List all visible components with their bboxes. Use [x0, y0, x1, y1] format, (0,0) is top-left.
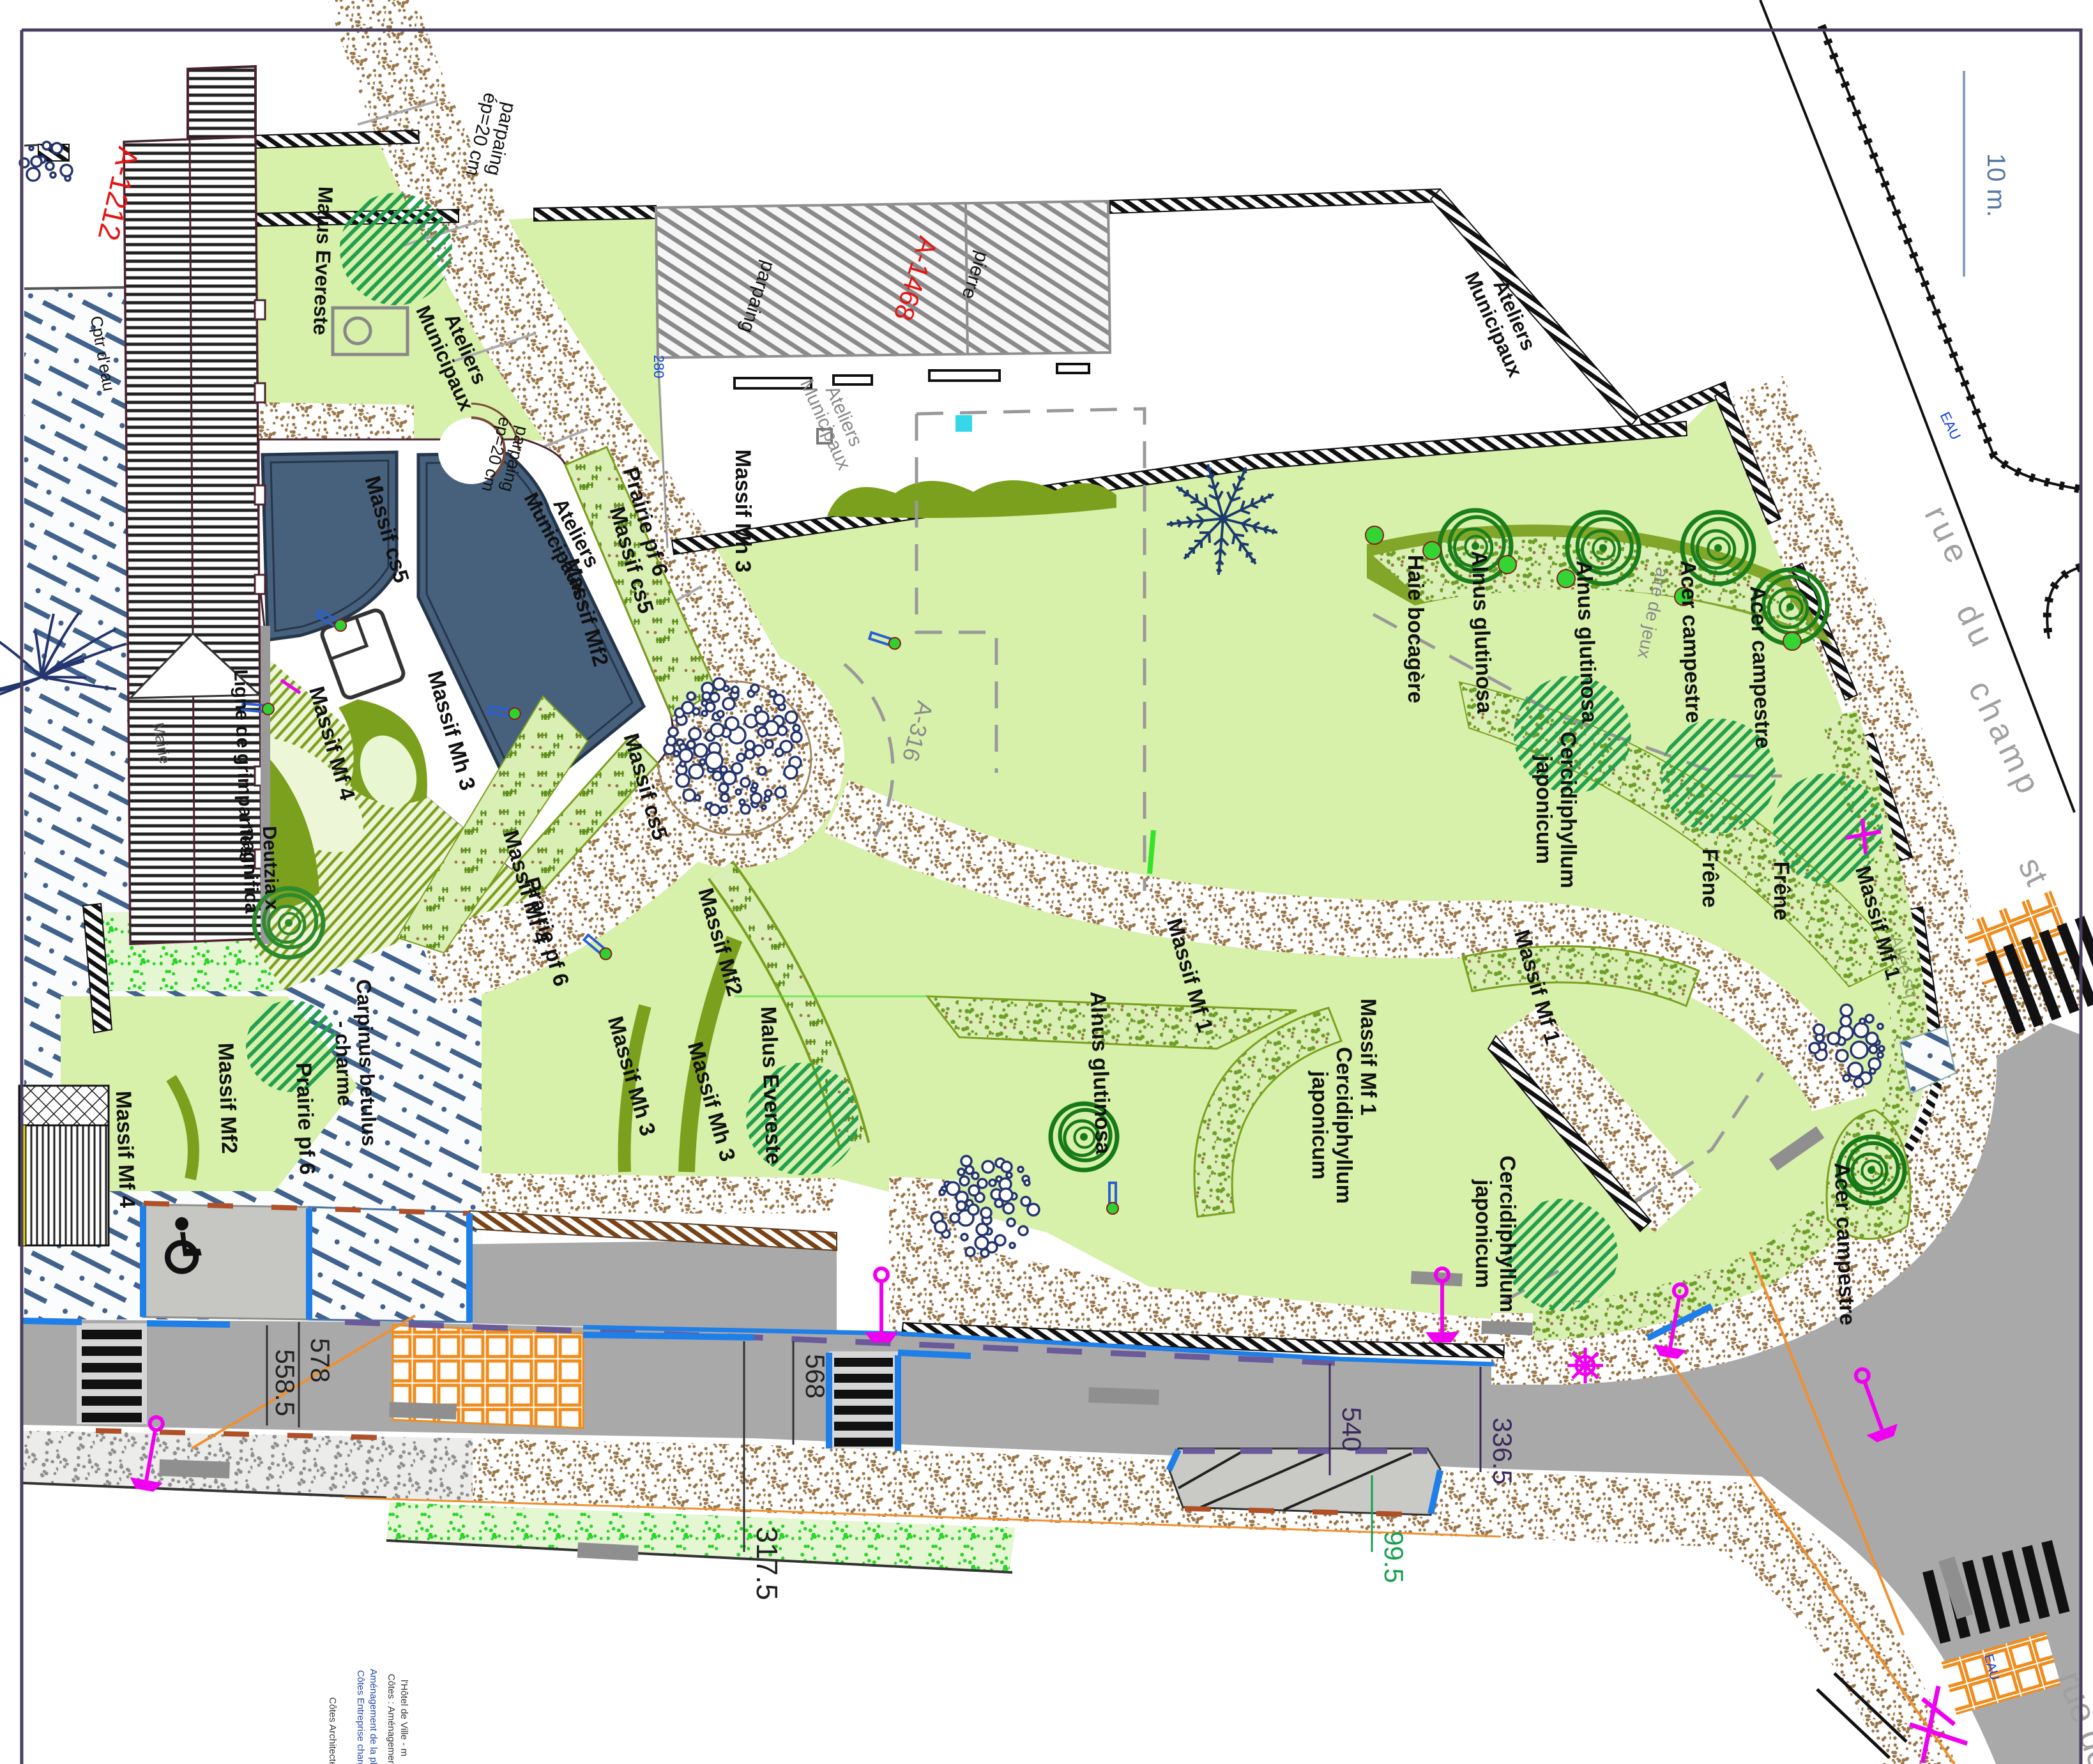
svg-text:Cercidiphyllum: Cercidiphyllum	[1556, 731, 1580, 888]
svg-text:Cercidiphyllum: Cercidiphyllum	[1495, 1155, 1519, 1312]
svg-text:Frêne: Frêne	[1698, 849, 1722, 908]
svg-text:Frêne: Frêne	[1769, 862, 1793, 921]
svg-text:japonicum: japonicum	[1532, 755, 1556, 864]
svg-text:Côtes Architecte: Côtes Architecte	[327, 1697, 338, 1764]
svg-text:Côtes : Aménagement: Côtes : Aménagement	[386, 1674, 397, 1764]
svg-text:Haie bocagère: Haie bocagère	[1403, 555, 1427, 703]
svg-text:- charme: - charme	[331, 1021, 357, 1107]
svg-text:336.5: 336.5	[1488, 1417, 1518, 1484]
svg-text:99.5: 99.5	[1379, 1531, 1409, 1583]
svg-text:568: 568	[800, 1354, 830, 1399]
svg-text:Cercidiphyllum: Cercidiphyllum	[1332, 1047, 1356, 1204]
svg-text:japonicum: japonicum	[1471, 1179, 1495, 1288]
svg-text:540: 540	[1337, 1407, 1367, 1452]
svg-text:Prairie pf 6: Prairie pf 6	[291, 1062, 319, 1175]
svg-text:Côtes Entreprise chargée: Côtes Entreprise chargée	[355, 1670, 366, 1764]
svg-text:l'Hôtel de Ville - m: l'Hôtel de Ville - m	[399, 1680, 409, 1756]
svg-text:Massif Mh 3: Massif Mh 3	[731, 450, 755, 573]
svg-text:Massif Mf 4: Massif Mf 4	[111, 1090, 139, 1208]
svg-text:Massif Mf 1: Massif Mf 1	[1356, 998, 1380, 1115]
svg-text:Aménagement de la place: Aménagement de la place	[368, 1669, 379, 1764]
svg-text:Massif Mf2: Massif Mf2	[213, 1042, 241, 1154]
svg-text:578: 578	[305, 1338, 335, 1383]
svg-text:280: 280	[651, 355, 667, 379]
svg-text:magnifica: magnifica	[238, 824, 263, 914]
svg-text:10 m.: 10 m.	[1982, 153, 2010, 217]
svg-text:558.5: 558.5	[270, 1349, 300, 1416]
svg-text:317.5: 317.5	[750, 1526, 784, 1600]
svg-text:japonicum: japonicum	[1307, 1070, 1332, 1180]
